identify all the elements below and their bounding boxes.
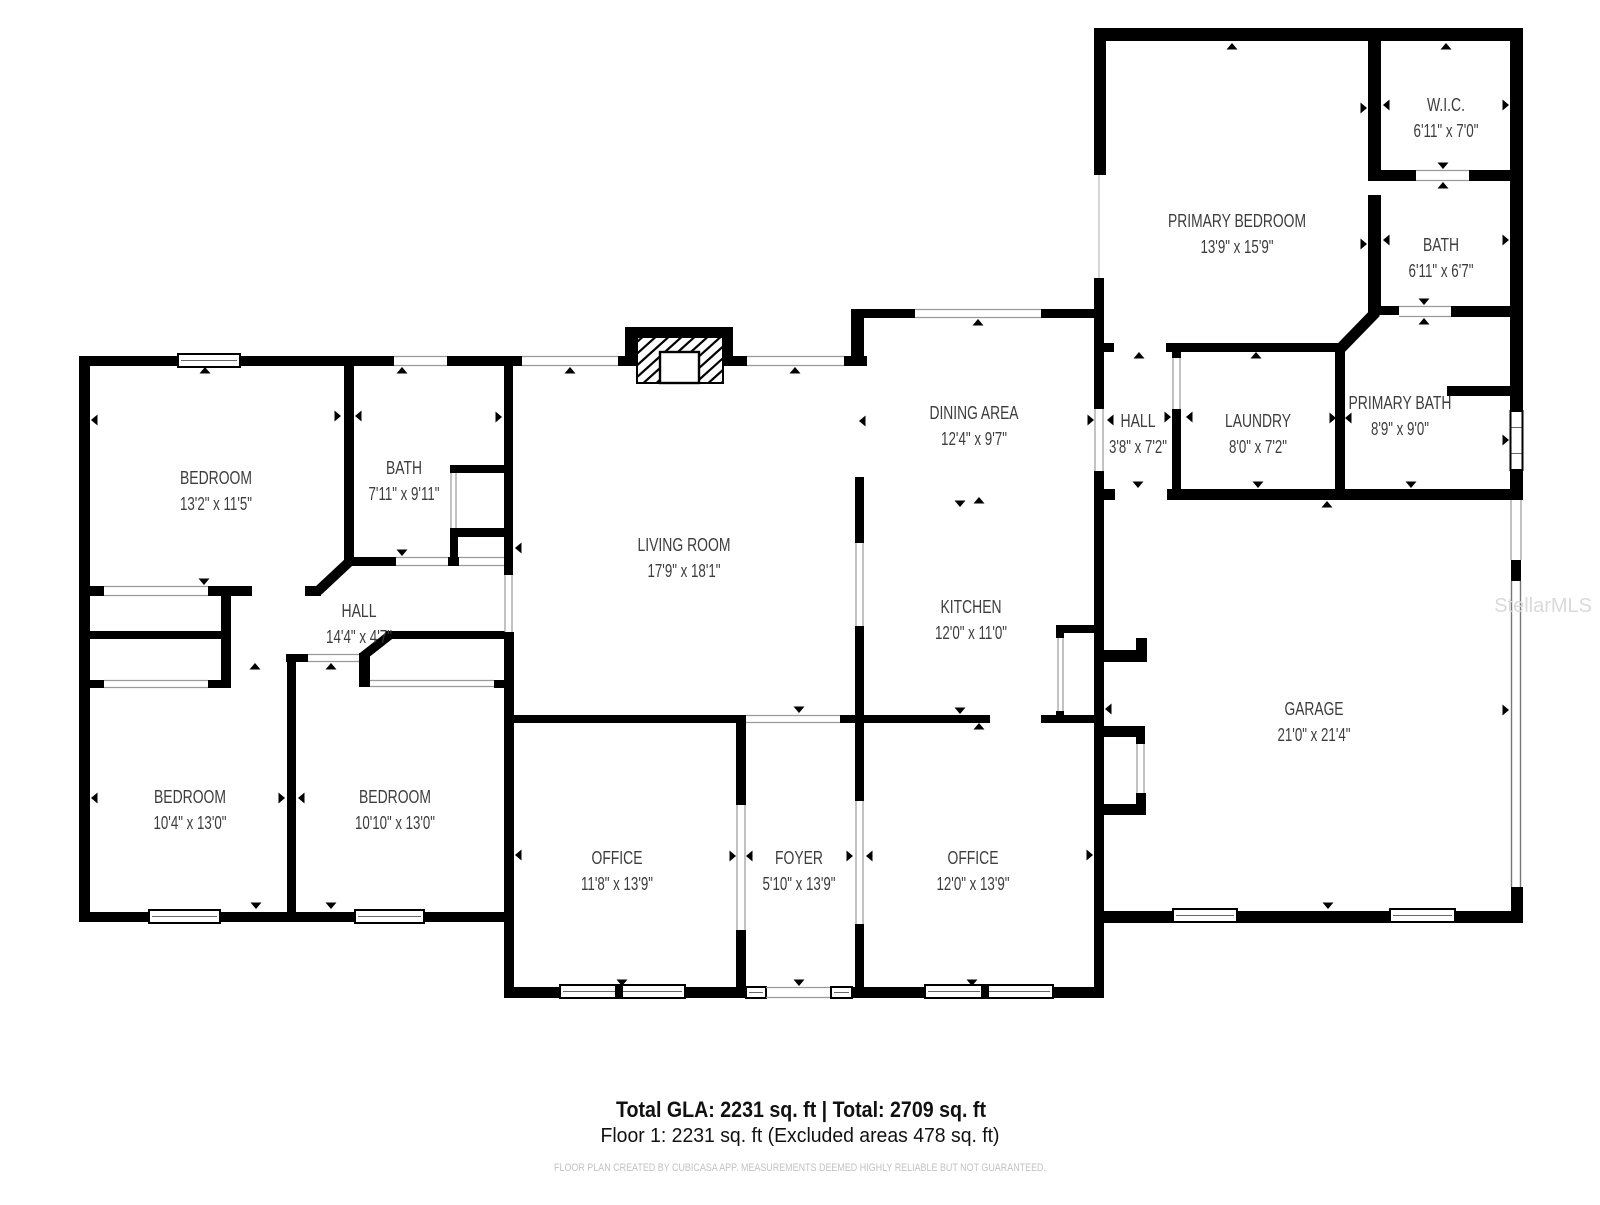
svg-text:7'11" x 9'11": 7'11" x 9'11"	[369, 483, 440, 504]
svg-text:Total GLA: 2231 sq. ft | Total: Total GLA: 2231 sq. ft | Total: 2709 sq.…	[616, 1097, 987, 1122]
svg-text:HALL: HALL	[1121, 410, 1156, 431]
svg-text:11'8" x 13'9": 11'8" x 13'9"	[581, 873, 653, 894]
svg-text:10'4" x 13'0": 10'4" x 13'0"	[154, 812, 227, 833]
svg-text:12'0" x 13'9": 12'0" x 13'9"	[937, 873, 1010, 894]
svg-text:6'11" x 6'7": 6'11" x 6'7"	[1409, 260, 1474, 281]
svg-text:DINING AREA: DINING AREA	[930, 402, 1019, 423]
svg-text:FOYER: FOYER	[775, 847, 823, 868]
svg-text:PRIMARY BATH: PRIMARY BATH	[1349, 392, 1452, 413]
svg-text:14'4" x 4'7": 14'4" x 4'7"	[326, 626, 392, 647]
svg-text:GARAGE: GARAGE	[1285, 698, 1344, 719]
svg-text:13'2" x 11'5": 13'2" x 11'5"	[180, 493, 252, 514]
svg-text:5'10" x 13'9": 5'10" x 13'9"	[763, 873, 836, 894]
svg-text:BEDROOM: BEDROOM	[154, 786, 226, 807]
svg-text:OFFICE: OFFICE	[948, 847, 999, 868]
svg-text:OFFICE: OFFICE	[592, 847, 643, 868]
svg-text:W.I.C.: W.I.C.	[1427, 94, 1465, 115]
svg-text:LIVING ROOM: LIVING ROOM	[638, 534, 731, 555]
svg-text:21'0" x 21'4": 21'0" x 21'4"	[1278, 724, 1351, 745]
svg-text:LAUNDRY: LAUNDRY	[1225, 410, 1291, 431]
svg-text:8'9" x 9'0": 8'9" x 9'0"	[1371, 418, 1429, 439]
svg-text:13'9" x 15'9": 13'9" x 15'9"	[1201, 236, 1274, 257]
svg-text:3'8" x 7'2": 3'8" x 7'2"	[1109, 436, 1167, 457]
svg-text:BEDROOM: BEDROOM	[359, 786, 431, 807]
svg-text:Floor 1: 2231 sq. ft (Excluded: Floor 1: 2231 sq. ft (Excluded areas 478…	[601, 1125, 1000, 1147]
svg-text:BATH: BATH	[386, 457, 422, 478]
svg-text:BATH: BATH	[1423, 234, 1459, 255]
svg-text:HALL: HALL	[342, 600, 377, 621]
svg-text:12'0" x 11'0": 12'0" x 11'0"	[935, 622, 1007, 643]
svg-text:17'9" x 18'1": 17'9" x 18'1"	[648, 560, 721, 581]
svg-text:StellarMLS: StellarMLS	[1494, 595, 1592, 617]
svg-text:12'4" x 9'7": 12'4" x 9'7"	[941, 428, 1007, 449]
svg-text:KITCHEN: KITCHEN	[941, 596, 1002, 617]
svg-text:8'0" x 7'2": 8'0" x 7'2"	[1229, 436, 1287, 457]
svg-text:PRIMARY BEDROOM: PRIMARY BEDROOM	[1168, 210, 1306, 231]
svg-text:BEDROOM: BEDROOM	[180, 467, 252, 488]
svg-text:FLOOR PLAN CREATED BY CUBICASA: FLOOR PLAN CREATED BY CUBICASA APP. MEAS…	[554, 1162, 1046, 1174]
svg-text:10'10" x 13'0": 10'10" x 13'0"	[355, 812, 435, 833]
svg-text:6'11" x 7'0": 6'11" x 7'0"	[1414, 120, 1479, 141]
